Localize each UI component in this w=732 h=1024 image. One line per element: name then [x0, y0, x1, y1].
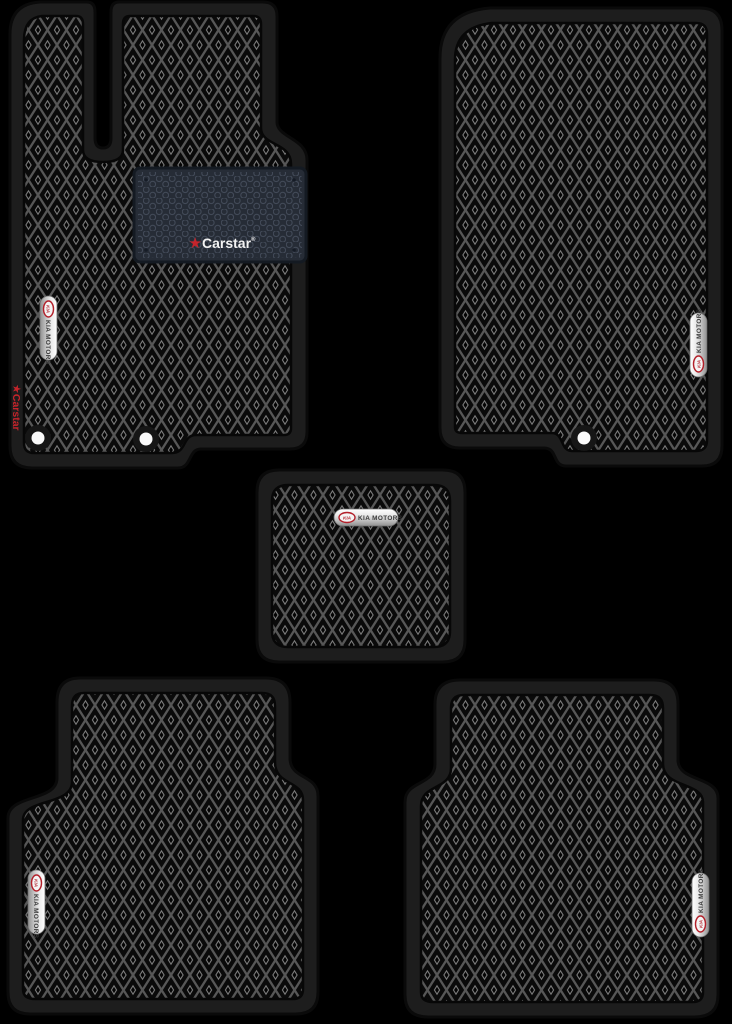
star-icon: ★	[189, 235, 202, 252]
fastener-hole	[32, 432, 45, 445]
star-icon: ★	[10, 384, 22, 394]
fastener-hole	[140, 433, 153, 446]
passenger-mat-surface	[455, 23, 707, 451]
kia-logo-text: KIA	[46, 305, 51, 313]
rear-right-mat-surface	[421, 695, 703, 1002]
kia-motors-badge: KIA KIA MOTORS	[690, 308, 707, 377]
fastener	[571, 425, 597, 451]
kia-motors-label: KIA MOTORS	[358, 515, 403, 522]
svg-text:★Carstar: ★Carstar	[10, 384, 22, 431]
carstar-edge-label: ★Carstar	[10, 384, 22, 431]
tunnel-mat: KIA KIA MOTORS	[257, 470, 465, 662]
kia-logo-text: KIA	[696, 360, 701, 368]
carstar-pad-logo: ★Carstar®	[189, 235, 256, 252]
product-photo: ★Carstar® KIA KIA MOTORS ★Carstar	[0, 0, 732, 1024]
fastener-hole	[578, 432, 591, 445]
heel-pad-screw	[292, 248, 296, 252]
registered-mark: ®	[251, 236, 256, 243]
kia-motors-label: KIA MOTORS	[44, 320, 51, 365]
kia-motors-badge: KIA KIA MOTORS	[334, 509, 403, 526]
rear-right-mat: KIA KIA MOTORS	[405, 680, 718, 1017]
heel-pad-screw	[292, 178, 296, 182]
fastener	[25, 425, 51, 451]
front-passenger-mat: KIA KIA MOTORS	[440, 8, 722, 466]
kia-logo-text: KIA	[34, 879, 39, 887]
kia-motors-label: KIA MOTORS	[698, 868, 705, 913]
carstar-edge-text: Carstar	[10, 394, 22, 431]
driver-mat: ★Carstar® KIA KIA MOTORS ★Carstar	[10, 2, 307, 468]
kia-logo-text: KIA	[698, 920, 703, 928]
heel-pad: ★Carstar®	[134, 168, 306, 262]
kia-motors-badge: KIA KIA MOTORS	[40, 296, 57, 365]
carstar-pad-label: Carstar	[202, 235, 252, 251]
kia-motors-badge: KIA KIA MOTORS	[692, 868, 709, 937]
fastener	[133, 426, 159, 452]
heel-pad-screw	[144, 178, 148, 182]
heel-pad-screw	[144, 248, 148, 252]
kia-logo-text: KIA	[343, 515, 351, 520]
rear-left-mat: KIA KIA MOTORS	[8, 678, 318, 1014]
kia-motors-badge: KIA KIA MOTORS	[28, 870, 45, 939]
floor-mat-set-image: ★Carstar® KIA KIA MOTORS ★Carstar	[0, 0, 732, 1024]
kia-motors-label: KIA MOTORS	[696, 308, 703, 353]
kia-motors-label: KIA MOTORS	[32, 894, 39, 939]
